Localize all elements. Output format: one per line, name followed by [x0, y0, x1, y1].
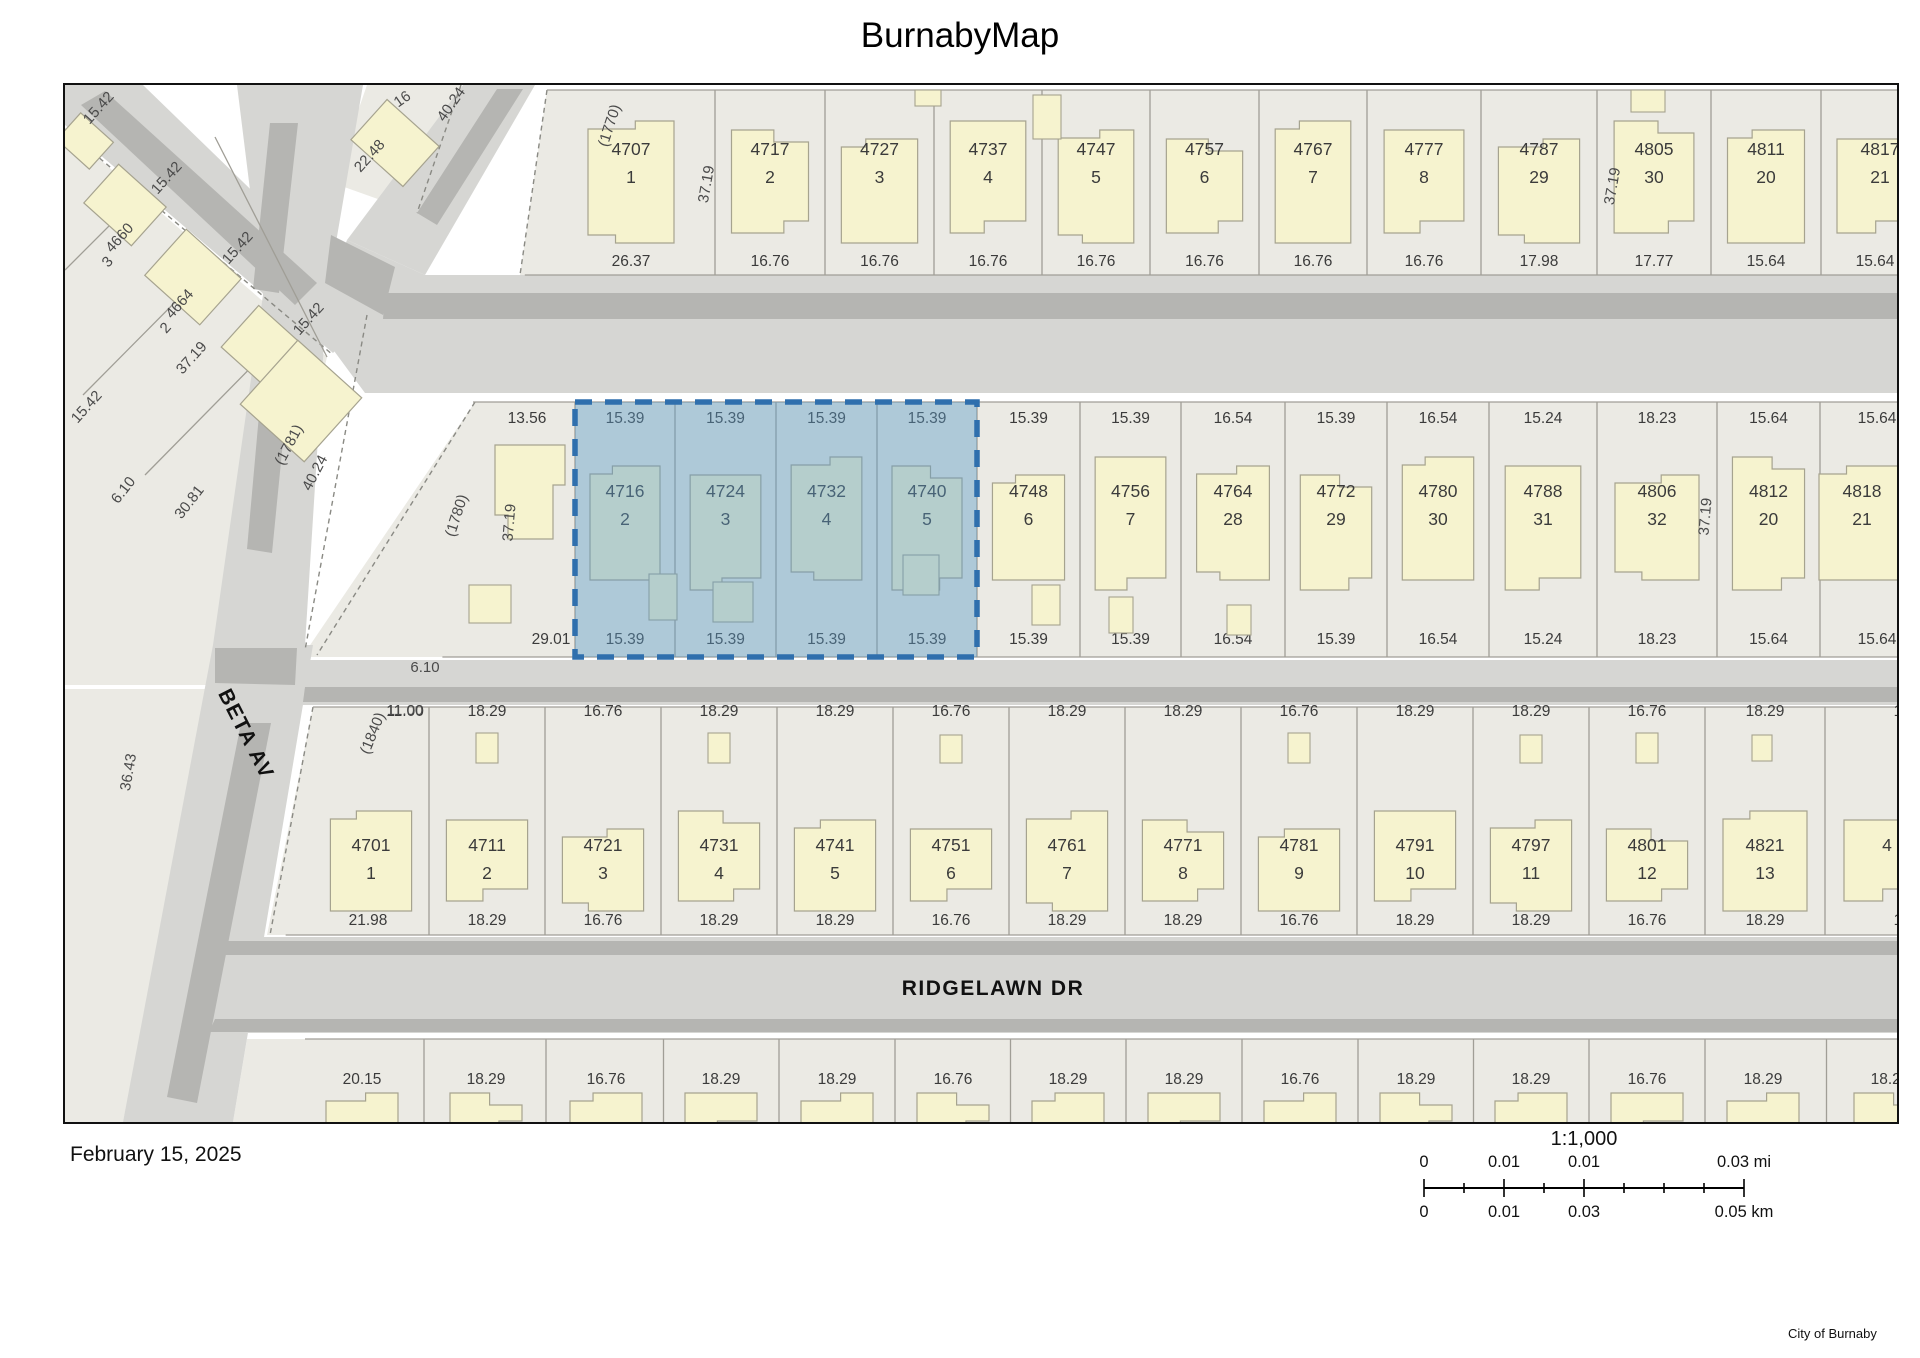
building	[1752, 735, 1772, 761]
parcel-lot-number: 8	[1419, 167, 1429, 187]
scale-mi-label: 0	[1419, 1153, 1428, 1172]
rear-dimension: 17.98	[1520, 253, 1559, 270]
rear-dimension: 16.76	[1294, 253, 1333, 270]
building	[1148, 1093, 1220, 1122]
parcel-address: 4777	[1405, 139, 1444, 159]
parcel-lot-number: 5	[830, 863, 840, 883]
parcel-lot-number: 4	[714, 863, 724, 883]
parcel-lot-number: 10	[1405, 863, 1425, 883]
parcel-address: 4757	[1185, 139, 1224, 159]
rear-dimension: 26.37	[612, 253, 651, 270]
scale-km-label: 0.03	[1568, 1203, 1600, 1222]
parcel-lot-number: 2	[765, 167, 775, 187]
street-label-ridgelawn-dr: RIDGELAWN DR	[902, 977, 1085, 1000]
dimension-label: 37.19	[1695, 497, 1715, 536]
frontage-dimension: 18.29	[468, 703, 507, 720]
building	[1520, 735, 1542, 763]
frontage-dimension: 15.64	[1858, 410, 1897, 427]
rear-dimension: 18.23	[1638, 631, 1677, 648]
building	[1033, 95, 1061, 139]
parcel-address: 4787	[1520, 139, 1559, 159]
parcel-address: 4788	[1524, 481, 1563, 501]
rear-dimension: 15.39	[1317, 631, 1356, 648]
dimension-label: 6.10	[410, 659, 439, 676]
rear-dimension: 16.76	[1077, 253, 1116, 270]
parcel-lot-number: 30	[1644, 167, 1664, 187]
rear-dimension: 15.64	[1858, 631, 1897, 648]
parcel-address: 4797	[1512, 835, 1551, 855]
frontage-dimension: 18.29	[1048, 703, 1087, 720]
building	[708, 733, 730, 763]
parcel-address: 4737	[969, 139, 1008, 159]
parcel-address: 4817	[1861, 139, 1897, 159]
parcel-address: 4780	[1419, 481, 1458, 501]
parcel-lot-number: 12	[1637, 863, 1656, 883]
scale-miles-labels: 00.010.010.03 mi	[1416, 1153, 1752, 1173]
rear-dimension: 15.64	[1747, 253, 1786, 270]
parcel-lot-number: 11	[1522, 863, 1540, 883]
frontage-dimension: 18.29	[1397, 1071, 1436, 1088]
building	[1288, 733, 1310, 763]
road-stripe	[215, 648, 297, 685]
building	[1723, 811, 1807, 911]
building	[1142, 820, 1223, 901]
rear-dimension: 15.64	[1856, 253, 1895, 270]
frontage-dimension: 18.29	[1049, 1071, 1088, 1088]
parcel-address: 4821	[1746, 835, 1785, 855]
parcel-lot-number: 1	[626, 167, 636, 187]
parcel-address: 4764	[1214, 481, 1253, 501]
parcel-address: 4748	[1009, 481, 1048, 501]
parcel-lot-number: 13	[1755, 863, 1774, 883]
parcel-address: 4767	[1294, 139, 1333, 159]
rear-dimension: 15.24	[1524, 631, 1563, 648]
parcel-address: 4811	[1747, 139, 1785, 159]
rear-dimension: 18.29	[1512, 912, 1551, 929]
road-stripe	[303, 687, 1897, 702]
parcel-lot-number: 7	[1126, 509, 1136, 529]
road-stripe	[209, 1019, 1897, 1032]
parcel-lot-number: 5	[1091, 167, 1101, 187]
building	[940, 735, 962, 763]
rear-dimension: 21.98	[349, 912, 388, 929]
frontage-dimension: 16.54	[1214, 410, 1253, 427]
parcel-lot-number: 8	[1178, 863, 1188, 883]
parcel-lot-number: 20	[1756, 167, 1776, 187]
parcel-address: 4818	[1843, 481, 1882, 501]
rear-dimension: 16.76	[969, 253, 1008, 270]
road-stripe	[383, 293, 1897, 319]
rear-dimension: 18.29	[1746, 912, 1785, 929]
parcel-address: 4701	[352, 835, 391, 855]
building	[1631, 90, 1665, 112]
parcel-lot-number: 2	[482, 863, 492, 883]
parcel-lot-number: 21	[1870, 167, 1889, 187]
road-stripe	[217, 941, 1897, 955]
frontage-dimension: 18.29	[1746, 703, 1785, 720]
rear-dimension: 18.29	[468, 912, 507, 929]
frontage-dimension: 16.76	[932, 703, 971, 720]
scale-km-label: 0.05 km	[1715, 1203, 1774, 1222]
parcel-lot-number: 30	[1428, 509, 1448, 529]
rear-dimension: 16.76	[584, 912, 623, 929]
frontage-dimension: 15.39	[1111, 410, 1150, 427]
parcel-lot-number: 3	[875, 167, 885, 187]
parcel-lot-number: 7	[1062, 863, 1072, 883]
parcel-lot-number: 6	[946, 863, 956, 883]
rear-dimension: 29.01	[532, 631, 571, 648]
rear-dimension: 15.64	[1749, 631, 1788, 648]
frontage-dimension: 16.76	[587, 1071, 626, 1088]
parcel-address: 4771	[1164, 835, 1203, 855]
rear-dimension: 16.76	[860, 253, 899, 270]
parcel-lot-number: 21	[1852, 509, 1871, 529]
rear-dimension: 18.29	[1164, 912, 1203, 929]
frontage-dimension: 18.29	[1871, 1071, 1897, 1088]
parcel-address: 4707	[612, 139, 651, 159]
frontage-dimension: 13.56	[508, 410, 547, 427]
parcel-address: 4	[1882, 835, 1892, 855]
parcel-lot-number: 29	[1529, 167, 1548, 187]
parcel-address: 4741	[816, 835, 855, 855]
frontage-dimension: 15.39	[1317, 410, 1356, 427]
parcel-address: 4772	[1317, 481, 1356, 501]
scale-ticks	[1416, 1173, 1752, 1203]
parcel-address: 4731	[700, 835, 739, 855]
rear-dimension: 15.39	[1009, 631, 1048, 648]
page-title: BurnabyMap	[0, 16, 1920, 56]
frontage-dimension: 18.29	[1165, 1071, 1204, 1088]
parcel-lot-number: 3	[598, 863, 608, 883]
parcel-address: 4812	[1749, 481, 1788, 501]
frontage-dimension: 16.54	[1419, 410, 1458, 427]
parcel-address: 4801	[1628, 835, 1667, 855]
frontage-dimension: 18.29	[700, 703, 739, 720]
frontage-dimension: 18.29	[1894, 703, 1897, 720]
building	[446, 820, 527, 901]
parcel-lot-number: 29	[1326, 509, 1345, 529]
parcel-address: 4717	[751, 139, 790, 159]
scale-ratio: 1:1,000	[1416, 1128, 1752, 1151]
building	[915, 90, 941, 106]
page: BurnabyMap 4707126.374717216.764727316.7…	[0, 0, 1920, 1358]
parcel-address: 4727	[860, 139, 899, 159]
parcel-lot-number: 6	[1200, 167, 1210, 187]
map-canvas[interactable]: 4707126.374717216.764727316.764737416.76…	[65, 85, 1897, 1122]
parcel-address: 4711	[468, 835, 506, 855]
parcel-address: 4791	[1396, 835, 1435, 855]
parcel-lot-number: 7	[1308, 167, 1318, 187]
frontage-dimension: 15.39	[1009, 410, 1048, 427]
scale-km-label: 0.01	[1488, 1203, 1520, 1222]
building	[1374, 811, 1455, 901]
rear-dimension: 18.29	[816, 912, 855, 929]
rear-dimension: 18.29	[1396, 912, 1435, 929]
building	[678, 811, 759, 901]
parcel-address: 4761	[1048, 835, 1087, 855]
parcel-lot-number: 6	[1024, 509, 1034, 529]
rear-dimension: 16.54	[1419, 631, 1458, 648]
building	[1227, 605, 1251, 635]
frontage-dimension: 18.29	[816, 703, 855, 720]
building	[1109, 597, 1133, 633]
scale-km-labels: 00.010.030.05 km	[1416, 1203, 1752, 1223]
building	[469, 585, 511, 623]
rear-dimension: 17.77	[1635, 253, 1674, 270]
map-date: February 15, 2025	[70, 1143, 242, 1167]
rear-dimension: 16.76	[1185, 253, 1224, 270]
parcel-address: 4721	[584, 835, 623, 855]
frontage-dimension: 18.29	[1512, 703, 1551, 720]
scale-mi-label: 0.01	[1568, 1153, 1600, 1172]
parcel-address: 4806	[1638, 481, 1677, 501]
frontage-dimension: 16.76	[934, 1071, 973, 1088]
rear-dimension: 16.76	[1405, 253, 1444, 270]
parcel-lot-number: 1	[366, 863, 376, 883]
parcel-address: 4751	[932, 835, 971, 855]
frontage-dimension: 16.76	[1281, 1071, 1320, 1088]
building	[476, 733, 498, 763]
frontage-dimension: 16.76	[1628, 1071, 1667, 1088]
rear-dimension: 16.76	[1628, 912, 1667, 929]
parcel-address: 4805	[1635, 139, 1674, 159]
rear-dimension: 18.29	[1894, 912, 1897, 929]
attribution: City of Burnaby	[1788, 1326, 1877, 1341]
frontage-dimension: 18.29	[702, 1071, 741, 1088]
frontage-dimension: 18.29	[1396, 703, 1435, 720]
frontage-dimension: 15.64	[1749, 410, 1788, 427]
frontage-dimension: 18.23	[1638, 410, 1677, 427]
scale-mi-label: 0.01	[1488, 1153, 1520, 1172]
rear-dimension: 16.76	[1280, 912, 1319, 929]
scale-mi-label: 0.03 mi	[1717, 1153, 1771, 1172]
frontage-dimension: 18.29	[1164, 703, 1203, 720]
parcel-lot-number: 20	[1759, 509, 1779, 529]
rear-dimension: 16.76	[932, 912, 971, 929]
building	[330, 811, 411, 911]
building	[1026, 811, 1107, 911]
parcel-address: 4756	[1111, 481, 1150, 501]
building	[1611, 1093, 1683, 1122]
parcel-lot-number: 32	[1647, 509, 1666, 529]
rear-dimension: 18.29	[1048, 912, 1087, 929]
dimension-label: 37.19	[499, 503, 519, 542]
building	[685, 1093, 757, 1122]
scale-km-label: 0	[1419, 1203, 1428, 1222]
building	[1854, 1093, 1897, 1122]
parcel-address: 4781	[1280, 835, 1319, 855]
frontage-dimension: 16.76	[1628, 703, 1667, 720]
selection-highlight[interactable]	[575, 402, 977, 657]
parcel-lot-number: 31	[1533, 509, 1552, 529]
map-frame: 4707126.374717216.764727316.764737416.76…	[63, 83, 1899, 1124]
frontage-dimension: 18.29	[1744, 1071, 1783, 1088]
parcel-lot-number: 28	[1223, 509, 1242, 529]
frontage-dimension: 18.29	[1512, 1071, 1551, 1088]
rear-dimension: 16.76	[751, 253, 790, 270]
parcel-address: 4747	[1077, 139, 1116, 159]
frontage-dimension: 16.76	[1280, 703, 1319, 720]
building	[1844, 820, 1897, 901]
parcel-lot-number: 9	[1294, 863, 1304, 883]
building	[1636, 733, 1658, 763]
frontage-dimension: 18.29	[467, 1071, 506, 1088]
frontage-dimension: 16.76	[584, 703, 623, 720]
frontage-dimension: 15.24	[1524, 410, 1563, 427]
frontage-dimension: 18.29	[818, 1071, 857, 1088]
scale-bar: 1:1,000 00.010.010.03 mi 00.010.030.05 k…	[1416, 1128, 1752, 1223]
rear-dimension: 18.29	[700, 912, 739, 929]
frontage-dimension: 20.15	[343, 1071, 382, 1088]
parcel-lot-number: 4	[983, 167, 993, 187]
building	[1032, 585, 1060, 625]
dimension-label: 11.00	[387, 702, 423, 719]
